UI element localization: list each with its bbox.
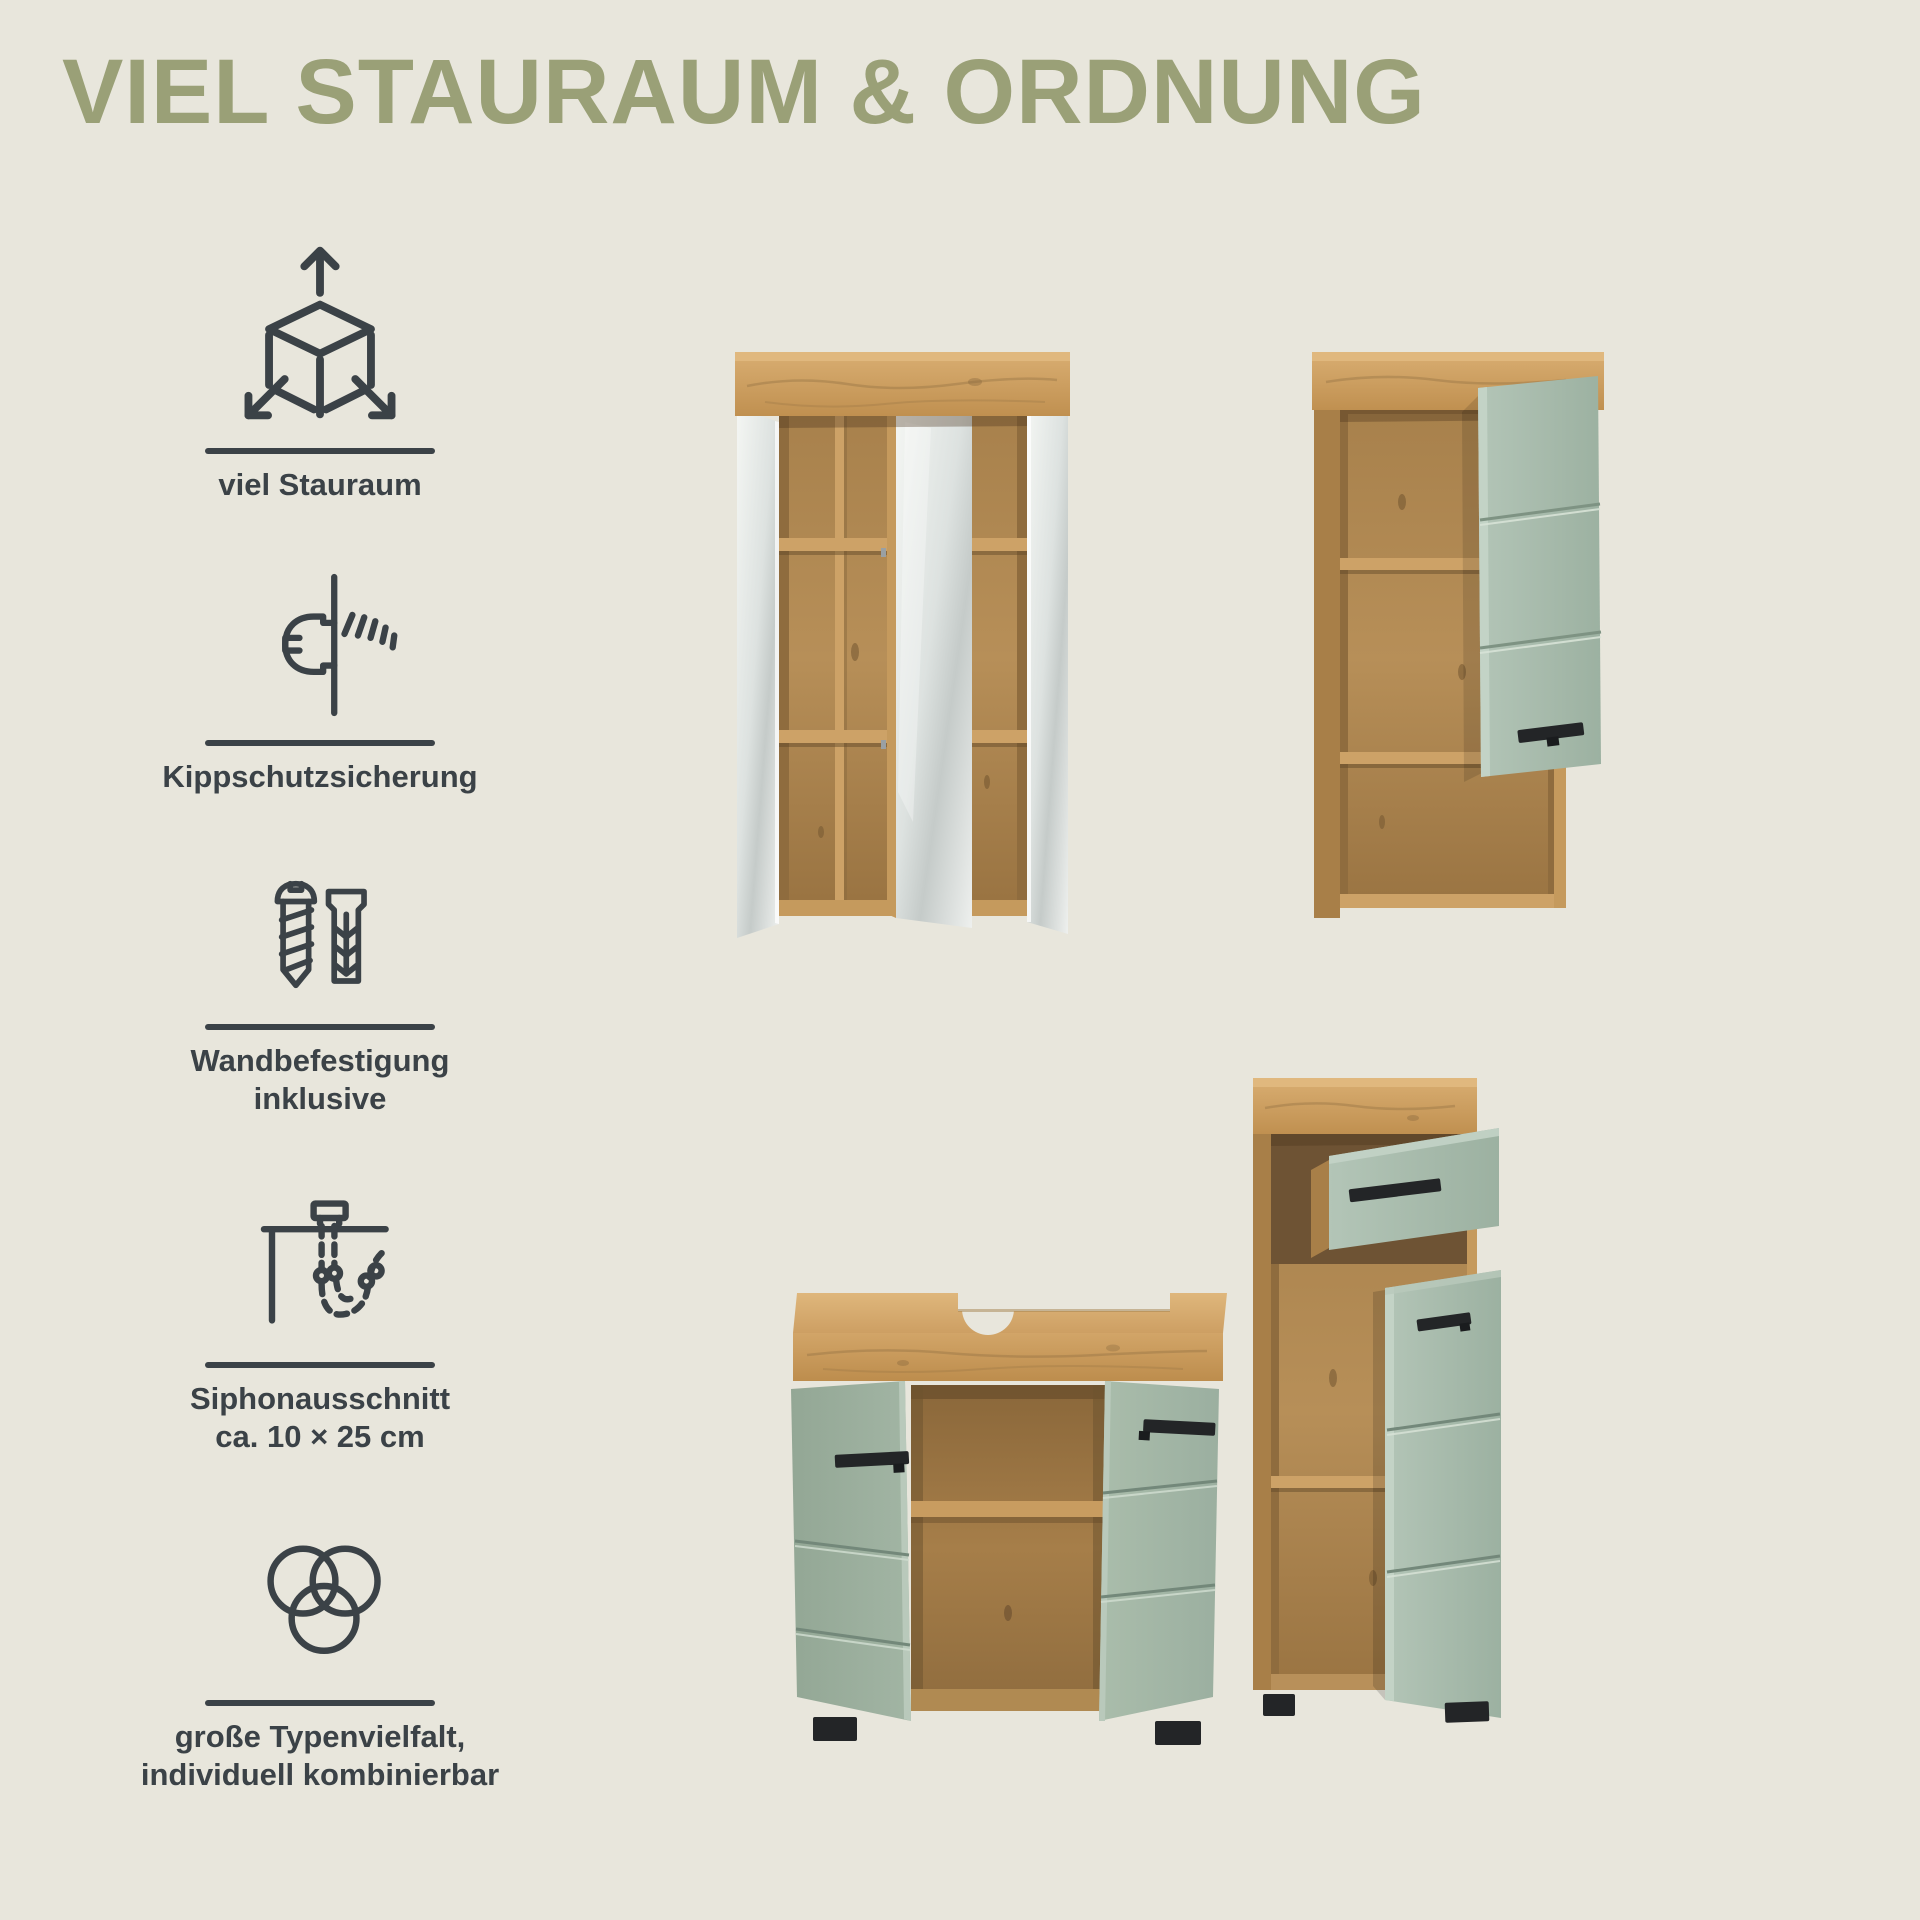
feature-label: Siphonausschnitt ca. 10 × 25 cm (190, 1380, 450, 1456)
feature-label: große Typenvielfalt, individuell kombini… (141, 1718, 499, 1794)
page-title: VIEL STAURAUM & ORDNUNG (62, 40, 1426, 145)
feature-label: Kippschutzsicherung (162, 758, 477, 796)
feature-label-line: große Typenvielfalt, (141, 1718, 499, 1756)
infographic-canvas: VIEL STAURAUM & ORDNUNG viel Stauraum (0, 0, 1920, 1920)
cube-expand-arrows-icon (222, 236, 418, 432)
divider (205, 448, 435, 454)
wall-cabinet-image (1312, 352, 1632, 937)
feature-label-line: individuell kombinierbar (141, 1756, 499, 1794)
feature-typenvielfalt: große Typenvielfalt, individuell kombini… (80, 1522, 560, 1794)
feature-label-line: ca. 10 × 25 cm (190, 1418, 450, 1456)
divider (205, 740, 435, 746)
feature-label-line: Wandbefestigung (191, 1042, 450, 1080)
feature-label-line: inklusive (191, 1080, 450, 1118)
divider (205, 1362, 435, 1368)
feature-label-line: viel Stauraum (218, 466, 421, 504)
screw-dowel-icon (249, 866, 391, 1008)
feature-label: Wandbefestigung inklusive (191, 1042, 450, 1118)
feature-label-line: Kippschutzsicherung (162, 758, 477, 796)
feature-viel-stauraum: viel Stauraum (80, 236, 560, 504)
siphon-cutout-icon (240, 1186, 400, 1346)
venn-circles-icon (239, 1522, 401, 1684)
feature-kippschutzsicherung: Kippschutzsicherung (80, 566, 560, 796)
feature-siphonausschnitt: Siphonausschnitt ca. 10 × 25 cm (80, 1186, 560, 1456)
divider (205, 1700, 435, 1706)
feature-label: viel Stauraum (218, 466, 421, 504)
feature-wandbefestigung: Wandbefestigung inklusive (80, 866, 560, 1118)
tip-over-protection-icon (241, 566, 399, 724)
mirror-cabinet-image (735, 352, 1070, 952)
feature-label-line: Siphonausschnitt (190, 1380, 450, 1418)
divider (205, 1024, 435, 1030)
side-cabinet-image (1253, 1078, 1518, 1723)
washbasin-cabinet-image (783, 1293, 1233, 1753)
